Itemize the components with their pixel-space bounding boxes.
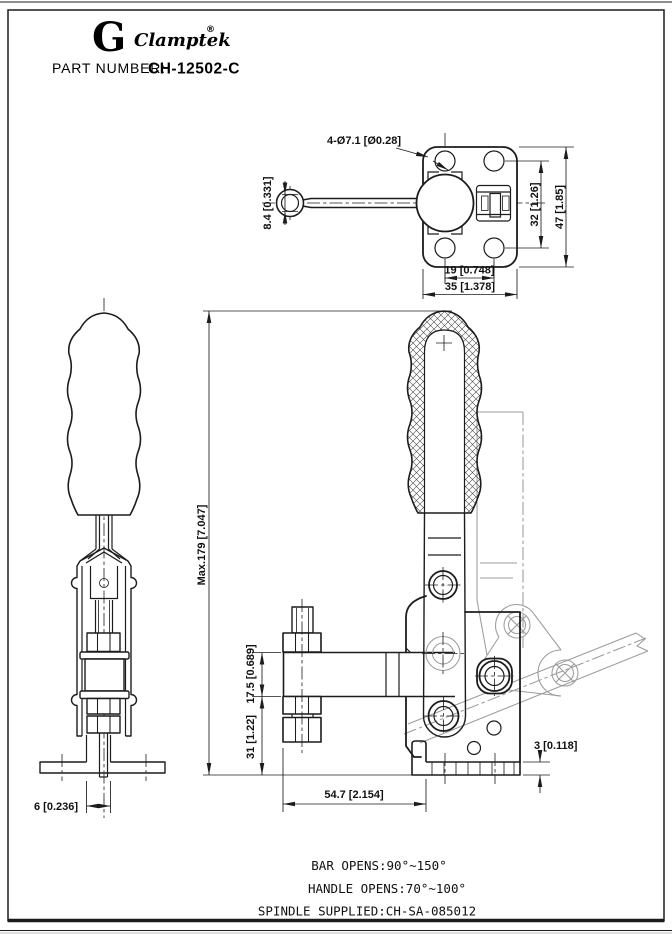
dim-ring-width: 8.4 [0.331]	[262, 176, 274, 230]
registered-mark: ®	[206, 25, 215, 35]
lever-top-pivot	[425, 567, 461, 603]
note-spindle-supplied: SPINDLE SUPPLIED:CH-SA-085012	[258, 904, 476, 919]
dim-bar-length: 54.7 [2.154]	[324, 789, 384, 801]
body-hole-upper	[487, 721, 501, 735]
note-handle-opens: HANDLE OPENS:70°~100°	[308, 881, 466, 896]
front-view: 6 [0.236]	[34, 298, 165, 818]
brand-name: Clamptek	[134, 30, 231, 51]
front-handle-grip	[68, 313, 141, 515]
dim-max-height: Max.179 [7.047]	[196, 504, 208, 585]
bar-holder	[477, 186, 511, 222]
dim-holes-callout: 4-Ø7.1 [Ø0.28]	[327, 135, 401, 147]
side-base	[412, 741, 520, 784]
front-spindle	[80, 600, 129, 777]
brand-logo-icon: G	[92, 14, 126, 61]
dim-hole-spacing-v: 32 [1.26]	[529, 182, 541, 226]
dim-bar-section: 17.5 [0.689]	[245, 644, 257, 704]
dim-hole-spacing-h: 19 [0.748]	[444, 265, 494, 277]
phantom-pivot-lower	[552, 660, 578, 686]
drawing-sheet: G Clamptek ® PART NUMBER: CH-12502-C	[0, 0, 672, 934]
dim-plate-width: 35 [1.378]	[445, 281, 495, 293]
title-block: G Clamptek ® PART NUMBER: CH-12502-C	[52, 14, 240, 78]
front-pivot-boss	[475, 656, 514, 696]
lever-bottom-pivot	[424, 697, 463, 735]
part-number-value: CH-12502-C	[148, 61, 240, 78]
dim-spindle-width: 6 [0.236]	[34, 801, 78, 813]
side-view: Max.179 [7.047] 17.5 [0.689] 31 [1.22] 5…	[196, 311, 648, 812]
body-hole-lower	[468, 742, 481, 755]
dim-plate-height: 47 [1.85]	[554, 185, 566, 229]
dim-base-thickness: 3 [0.118]	[534, 740, 578, 752]
dim-bar-to-base: 31 [1.22]	[245, 715, 257, 759]
drawing-notes: BAR OPENS:90°~150° HANDLE OPENS:70°~100°…	[258, 858, 476, 919]
technical-drawing: G Clamptek ® PART NUMBER: CH-12502-C	[0, 0, 672, 934]
side-handle-grip	[408, 311, 482, 513]
note-bar-opens: BAR OPENS:90°~150°	[311, 858, 446, 873]
phantom-pivot-upper	[504, 612, 530, 638]
top-view: 4-Ø7.1 [Ø0.28] 8.4 [0.331] 32 [1.26] 47 …	[262, 133, 574, 299]
clamp-bar	[284, 653, 456, 697]
handle-boss	[417, 175, 474, 232]
front-view-dimensions: 6 [0.236]	[34, 781, 111, 813]
grip-center-mark	[436, 335, 452, 351]
top-view-dimensions: 4-Ø7.1 [Ø0.28] 8.4 [0.331] 32 [1.26] 47 …	[262, 135, 574, 299]
